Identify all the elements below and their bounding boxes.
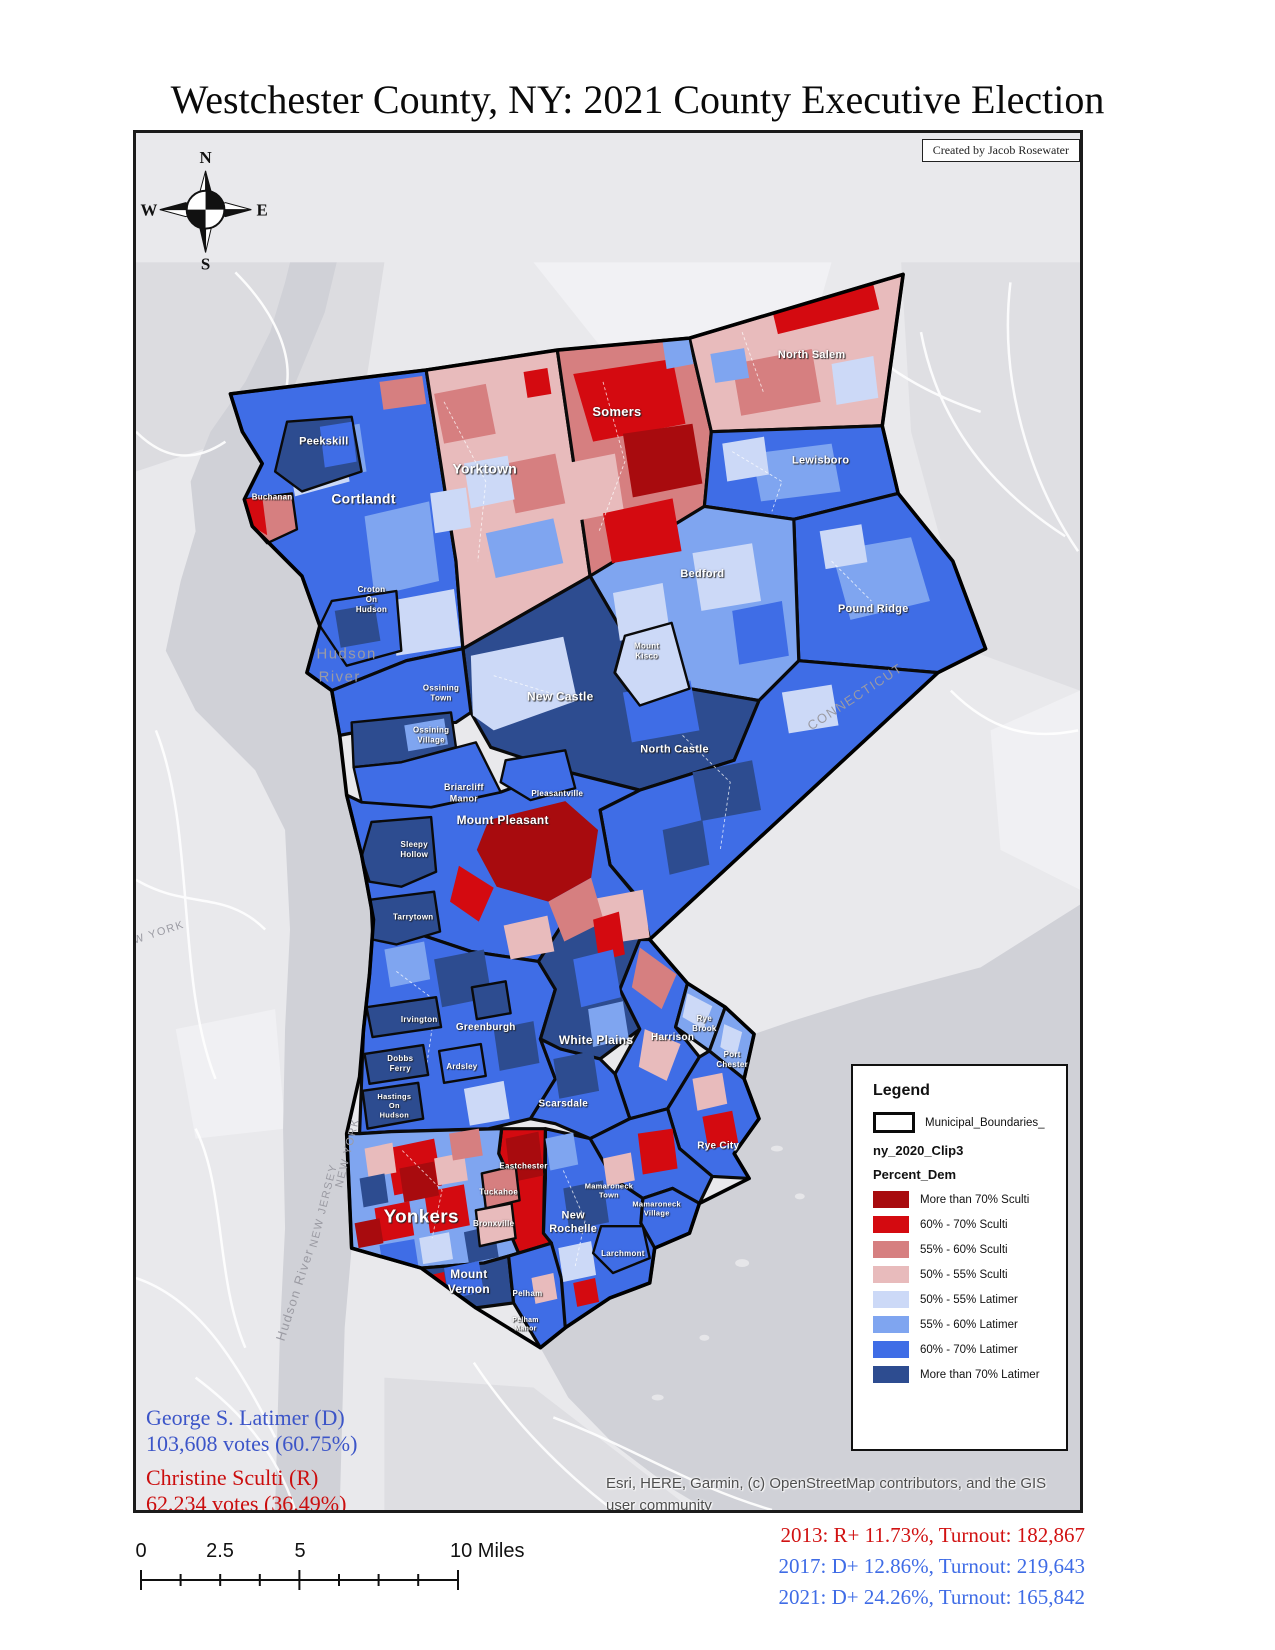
- republican-votes: 62,234 votes (36.49%): [146, 1491, 357, 1513]
- legend-item: 55% - 60% Latimer: [873, 1316, 1066, 1333]
- page-title: Westchester County, NY: 2021 County Exec…: [0, 76, 1275, 123]
- map-label-pleasantville: Pleasantville: [531, 789, 583, 798]
- legend-item-label: 50% - 55% Sculti: [920, 1269, 1008, 1281]
- scale-bar-label: 10 Miles: [450, 1540, 524, 1563]
- esri-attribution: Esri, HERE, Garmin, (c) OpenStreetMap co…: [606, 1473, 1071, 1513]
- legend-layer-name: ny_2020_Clip3: [873, 1143, 1066, 1158]
- legend-item-label: 50% - 55% Latimer: [920, 1294, 1018, 1306]
- compass-e-label: E: [257, 201, 268, 220]
- map-label-bronxville: Bronxville: [473, 1219, 515, 1228]
- credit-box: Created by Jacob Rosewater: [922, 139, 1080, 162]
- scale-bar-label: 5: [294, 1540, 305, 1563]
- legend-color-swatch: [873, 1341, 909, 1358]
- republican-name: Christine Sculti (R): [146, 1465, 357, 1491]
- boundary-swatch: [873, 1112, 915, 1133]
- legend-color-swatch: [873, 1216, 909, 1233]
- democrat-name: George S. Latimer (D): [146, 1405, 357, 1431]
- map-label-sleepy-hollow: SleepyHollow: [400, 840, 428, 859]
- legend-field-name: Percent_Dem: [873, 1167, 1066, 1182]
- geo-label: River: [319, 669, 361, 686]
- democrat-votes: 103,608 votes (60.75%): [146, 1431, 357, 1457]
- map-label-new-castle: New Castle: [527, 690, 594, 704]
- legend-item: 55% - 60% Sculti: [873, 1241, 1066, 1258]
- legend-item-label: More than 70% Latimer: [920, 1369, 1040, 1381]
- boundary-label: Municipal_Boundaries_: [925, 1117, 1045, 1129]
- map-label-somers: Somers: [592, 404, 641, 419]
- map-label-north-salem: North Salem: [778, 349, 846, 361]
- map-label-cortlandt: Cortlandt: [331, 490, 395, 506]
- map-label-dobbs-ferry: DobbsFerry: [387, 1054, 413, 1073]
- legend-item: 60% - 70% Latimer: [873, 1341, 1066, 1358]
- map-label-ossining-village: OssiningVillage: [413, 725, 449, 744]
- scale-bar-label: 0: [135, 1540, 146, 1563]
- legend-title: Legend: [873, 1082, 1066, 1100]
- compass-s-label: S: [201, 254, 210, 273]
- legend-item-label: 55% - 60% Latimer: [920, 1319, 1018, 1331]
- map-label-tuckahoe: Tuckahoe: [479, 1187, 518, 1196]
- legend-color-swatch: [873, 1266, 909, 1283]
- map-label-harrison: Harrison: [651, 1032, 694, 1043]
- legend-color-swatch: [873, 1316, 909, 1333]
- map-label-mount-vernon: MountVernon: [448, 1267, 490, 1296]
- map-label-larchmont: Larchmont: [601, 1249, 645, 1258]
- legend-item: 60% - 70% Sculti: [873, 1216, 1066, 1233]
- legend-item-label: 60% - 70% Latimer: [920, 1344, 1018, 1356]
- map-label-mount-pleasant: Mount Pleasant: [457, 813, 549, 827]
- map-label-scarsdale: Scarsdale: [538, 1099, 588, 1110]
- map-label-north-castle: North Castle: [640, 743, 709, 755]
- history-line: 2017: D+ 12.86%, Turnout: 219,643: [779, 1551, 1085, 1582]
- history-line: 2021: D+ 24.26%, Turnout: 165,842: [779, 1582, 1085, 1613]
- map-label-yorktown: Yorktown: [452, 461, 517, 477]
- scale-bar-graphic: [133, 1568, 553, 1598]
- map-label-white-plains: White Plains: [559, 1033, 633, 1047]
- map-label-bedford: Bedford: [680, 568, 724, 580]
- page: Westchester County, NY: 2021 County Exec…: [0, 0, 1275, 1650]
- legend-item: More than 70% Sculti: [873, 1191, 1066, 1208]
- map-label-pelham: Pelham: [513, 1289, 543, 1298]
- map-label-pound-ridge: Pound Ridge: [838, 603, 909, 615]
- map-label-lewisboro: Lewisboro: [792, 455, 849, 467]
- map-label-eastchester: Eastchester: [499, 1161, 547, 1170]
- scale-bar: 02.5510 Miles: [133, 1540, 553, 1600]
- map-label-ardsley: Ardsley: [446, 1062, 477, 1071]
- legend-color-swatch: [873, 1191, 909, 1208]
- history-line: 2013: R+ 11.73%, Turnout: 182,867: [779, 1520, 1085, 1551]
- legend-color-swatch: [873, 1241, 909, 1258]
- legend-item-label: More than 70% Sculti: [920, 1194, 1029, 1206]
- map-label-irvington: Irvington: [401, 1015, 438, 1024]
- map-label-mount-kisco: MountKisco: [634, 642, 659, 661]
- legend-item-label: 60% - 70% Sculti: [920, 1219, 1008, 1231]
- legend-item-label: 55% - 60% Sculti: [920, 1244, 1008, 1256]
- legend-item: 50% - 55% Sculti: [873, 1266, 1066, 1283]
- map-label-buchanan: Buchanan: [252, 492, 293, 501]
- legend-color-swatch: [873, 1291, 909, 1308]
- scale-bar-label: 2.5: [206, 1540, 234, 1563]
- legend-color-swatch: [873, 1366, 909, 1383]
- map-label-rye-city: Rye City: [697, 1141, 739, 1152]
- legend-item: 50% - 55% Latimer: [873, 1291, 1066, 1308]
- map-label-tarrytown: Tarrytown: [393, 913, 433, 922]
- esri-attribution-line2: user community: [606, 1495, 1071, 1513]
- map-label-greenburgh: Greenburgh: [456, 1022, 516, 1033]
- history-block: 2013: R+ 11.73%, Turnout: 182,8672017: D…: [779, 1520, 1085, 1613]
- map-label-briarcliff-manor: BriarcliffManor: [444, 782, 484, 803]
- compass-n-label: N: [199, 148, 211, 167]
- map-label-yonkers: Yonkers: [384, 1206, 459, 1227]
- results-block: George S. Latimer (D) 103,608 votes (60.…: [146, 1405, 357, 1513]
- esri-attribution-line1: Esri, HERE, Garmin, (c) OpenStreetMap co…: [606, 1473, 1071, 1495]
- map-label-pelham-manor: PelhamManor: [512, 1317, 539, 1333]
- legend-item: More than 70% Latimer: [873, 1366, 1066, 1383]
- legend-boundary-row: Municipal_Boundaries_: [873, 1112, 1066, 1133]
- compass-w-label: W: [140, 201, 157, 220]
- legend-items: More than 70% Sculti60% - 70% Sculti55% …: [873, 1191, 1066, 1383]
- legend: Legend Municipal_Boundaries_ ny_2020_Cli…: [851, 1064, 1068, 1451]
- map-frame: Hudson River: [133, 130, 1083, 1513]
- municipality-elmsford: [472, 981, 511, 1019]
- map-label-peekskill: Peekskill: [299, 436, 348, 448]
- geo-label: Hudson: [317, 646, 377, 663]
